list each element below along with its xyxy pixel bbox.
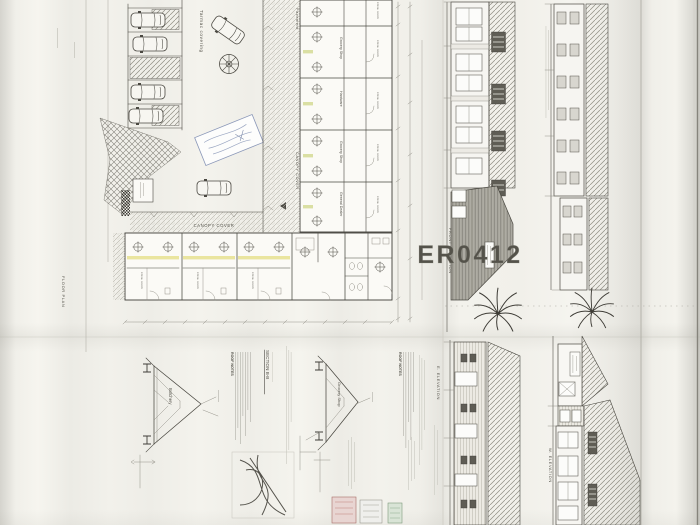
landscape-island — [100, 118, 181, 216]
margin-dimension-notes — [57, 28, 75, 58]
canopy-cover-label-vertical: CANOPY COVER — [295, 152, 299, 190]
floor-plan-title: FLOOR PLAN — [61, 276, 66, 307]
shop-name: Grocery Shop — [339, 141, 343, 163]
side-elevation-top — [545, 4, 614, 328]
parked-car — [131, 83, 165, 101]
store-room-label: store room — [376, 196, 380, 213]
roof-notes-title: ROOF NOTES — [230, 352, 234, 376]
pavement-canopy-strip: Pavement CANOPY COVER — [263, 0, 300, 232]
parked-car — [129, 107, 163, 125]
west-elevation-label: W. ELEVATION — [548, 448, 553, 483]
store-room-label: store room — [196, 272, 200, 289]
shop-name: Grocery Shop — [339, 37, 343, 59]
palm-tree — [570, 288, 614, 328]
canopy-strip-horizontal: CANOPY COVER — [130, 212, 263, 232]
roof-plane-lower — [589, 198, 608, 290]
moving-car — [209, 13, 247, 47]
section-room-label: Grocery Shop — [337, 382, 342, 407]
car-in-plan — [197, 179, 231, 197]
section-b-b: Butchery ROOF NOTES SECTION B-B — [131, 346, 292, 488]
west-elevation: W. ELEVATION — [548, 336, 640, 525]
parking-area — [128, 0, 182, 130]
store-room-label: store room — [376, 40, 380, 57]
section-b-b-title: SECTION B-B — [265, 350, 270, 379]
roof-notes-title: ROOF NOTES — [398, 352, 402, 376]
south-wing-shops: store room store room store room — [113, 233, 392, 300]
east-elevation: E. ELEVATION — [434, 340, 520, 525]
approval-signature-block — [232, 432, 320, 518]
pavement-label: Pavement — [295, 8, 299, 30]
gable-signboard — [570, 352, 580, 376]
planting-strip — [121, 190, 130, 216]
east-wing-shops: store room Grocery Shop store room Hardw… — [300, 0, 392, 232]
watermark: ER0412 — [417, 241, 522, 269]
store-room-label: store room — [140, 272, 144, 289]
shop-name: Hardware — [339, 91, 343, 107]
section-room-label: Butchery — [168, 388, 173, 405]
store-room-label: store room — [376, 2, 380, 19]
signature-scribble — [240, 455, 286, 515]
detail-chip-grey — [360, 500, 382, 523]
parked-car — [131, 11, 165, 29]
tree-symbol — [220, 55, 239, 74]
shop-name: General Dealer — [339, 192, 343, 217]
stamp-note — [195, 114, 264, 165]
architectural-drawing-sheet: Tarmac covering — [0, 0, 700, 525]
parked-car — [133, 35, 167, 53]
roof-plane-lower — [584, 400, 640, 525]
doors-and-windows — [455, 354, 477, 508]
detail-chip-red — [332, 497, 356, 523]
tarmac-label: Tarmac covering — [199, 10, 204, 53]
canopy-cover-label-horizontal: CANOPY COVER — [194, 223, 235, 228]
hip-roof — [582, 336, 608, 406]
store-room-label: store room — [376, 92, 380, 109]
site-plan: Tarmac covering — [61, 0, 422, 324]
roof-plane — [586, 4, 608, 196]
detail-drawings — [332, 437, 415, 523]
roof-plane — [488, 342, 520, 525]
store-room-label: store room — [251, 272, 255, 289]
east-elevation-label: E. ELEVATION — [436, 366, 441, 400]
palm-tree — [474, 288, 522, 332]
store-room-label: store room — [376, 144, 380, 161]
